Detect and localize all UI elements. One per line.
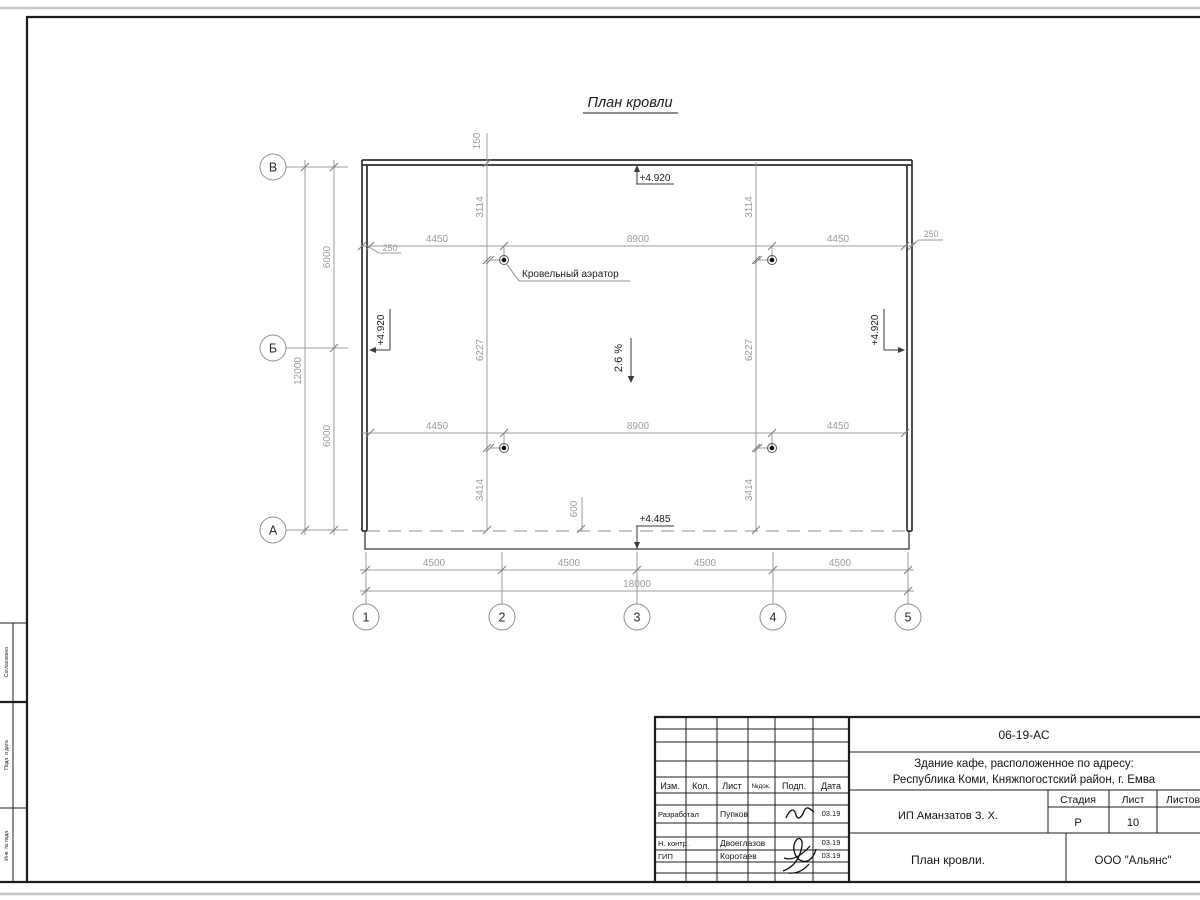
- signature: [786, 808, 814, 818]
- dim-18000: 18000: [623, 579, 651, 590]
- dim-250-right: 250: [923, 229, 938, 239]
- doc-number: 06-19-АС: [998, 728, 1049, 742]
- elevation-eave-value: +4.485: [640, 514, 671, 525]
- client-name: ИП Аманзатов З. Х.: [898, 810, 998, 822]
- axis-col-1: 1: [363, 611, 370, 625]
- side-stamp-cell1: Согласовано: [4, 647, 10, 677]
- row3-date: 03.19: [822, 851, 841, 860]
- row2-date: 03.19: [822, 838, 841, 847]
- side-stamp-cell3: Инв. № подл.: [4, 829, 10, 860]
- dim-4500-3: 4500: [694, 558, 717, 569]
- col-data: Дата: [821, 781, 841, 791]
- row1-role: Разработал: [658, 810, 699, 819]
- drawing-caption: План кровли: [583, 95, 678, 113]
- row2-role: Н. контр.: [658, 839, 689, 848]
- elevation-top: +4.920: [634, 165, 674, 184]
- dim-3114-left: 3114: [475, 196, 486, 218]
- row1-name: Пупков: [720, 809, 749, 819]
- axis-row-a: А: [269, 524, 278, 538]
- dim-12000: 12000: [293, 357, 304, 385]
- dim-4450-tr: 4450: [827, 234, 850, 245]
- elevation-right-value: +4.920: [870, 314, 881, 345]
- project-name-line2: Республика Коми, Княжпогостский район, г…: [893, 774, 1156, 786]
- signature: [783, 839, 816, 874]
- page-title: План кровли: [587, 95, 672, 111]
- axis-col-5: 5: [905, 611, 912, 625]
- dim-4500-4: 4500: [829, 558, 852, 569]
- dim-6227-left: 6227: [475, 338, 486, 361]
- dim-3114-right: 3114: [744, 196, 755, 218]
- dim-150: 150: [472, 132, 483, 149]
- col-izm: Изм.: [660, 781, 679, 791]
- sheet-value: 10: [1127, 817, 1139, 829]
- dimension-ticks: [301, 159, 916, 595]
- title-block: 06-19-АС Здание кафе, расположенное по а…: [655, 717, 1200, 882]
- roof-outline: [362, 160, 912, 549]
- dim-4450-bl: 4450: [426, 421, 449, 432]
- elevation-left-value: +4.920: [376, 314, 387, 345]
- aerator-callout: Кровельный аэратор: [506, 263, 630, 281]
- dim-4450-br: 4450: [827, 421, 850, 432]
- dim-8900-b: 8900: [627, 421, 650, 432]
- row1-date: 03.19: [822, 809, 841, 818]
- roof-plan-drawing: Согласовано Подп. и дата Инв. № подл. Пл…: [0, 0, 1200, 900]
- col-ndok: №док.: [751, 783, 770, 790]
- sheet-title: План кровли.: [911, 853, 985, 867]
- dim-3414-left: 3414: [475, 478, 486, 501]
- elevation-left: +4.920: [369, 309, 390, 353]
- axis-col-2: 2: [499, 611, 506, 625]
- dim-6000-lower: 6000: [322, 424, 333, 447]
- company-name: ООО "Альянс": [1095, 855, 1172, 867]
- row3-name: Коротаев: [720, 851, 757, 861]
- dim-3414-right: 3414: [744, 478, 755, 501]
- sheets-label: Листов: [1166, 794, 1200, 806]
- stage-value: Р: [1074, 817, 1081, 829]
- elevation-right: +4.920: [870, 309, 905, 353]
- elevation-top-value: +4.920: [640, 173, 671, 184]
- aerator-label: Кровельный аэратор: [522, 269, 619, 280]
- col-list: Лист: [722, 781, 742, 791]
- row3-role: ГИП: [658, 852, 673, 861]
- col-kol: Кол.: [692, 781, 710, 791]
- dim-4500-2: 4500: [558, 558, 581, 569]
- slope-label: 2.6 %: [613, 344, 625, 372]
- dim-4450-tl: 4450: [426, 234, 449, 245]
- side-stamp: Согласовано Подп. и дата Инв. № подл.: [0, 623, 27, 882]
- row2-name: Двоеглазов: [720, 838, 766, 848]
- axis-col-4: 4: [770, 611, 777, 625]
- dim-8900-t: 8900: [627, 234, 650, 245]
- dim-6000-upper: 6000: [322, 245, 333, 268]
- dim-6227-right: 6227: [744, 338, 755, 361]
- stage-label: Стадия: [1060, 794, 1096, 806]
- axis-col-3: 3: [634, 611, 641, 625]
- grid-axes: В Б А 1 2 3 4 5: [260, 154, 921, 630]
- sheet-label: Лист: [1122, 794, 1145, 806]
- axis-row-v: В: [269, 161, 277, 175]
- dim-600: 600: [569, 500, 580, 517]
- project-name-line1: Здание кафе, расположенное по адресу:: [914, 758, 1134, 770]
- slope-mark: 2.6 %: [613, 338, 634, 383]
- axis-row-b: Б: [269, 342, 277, 356]
- side-stamp-cell2: Подп. и дата: [4, 740, 10, 770]
- drawing-sheet: Согласовано Подп. и дата Инв. № подл. Пл…: [0, 0, 1200, 900]
- dim-250-left: 250: [382, 243, 397, 253]
- dim-4500-1: 4500: [423, 558, 446, 569]
- col-podp: Подп.: [782, 781, 806, 791]
